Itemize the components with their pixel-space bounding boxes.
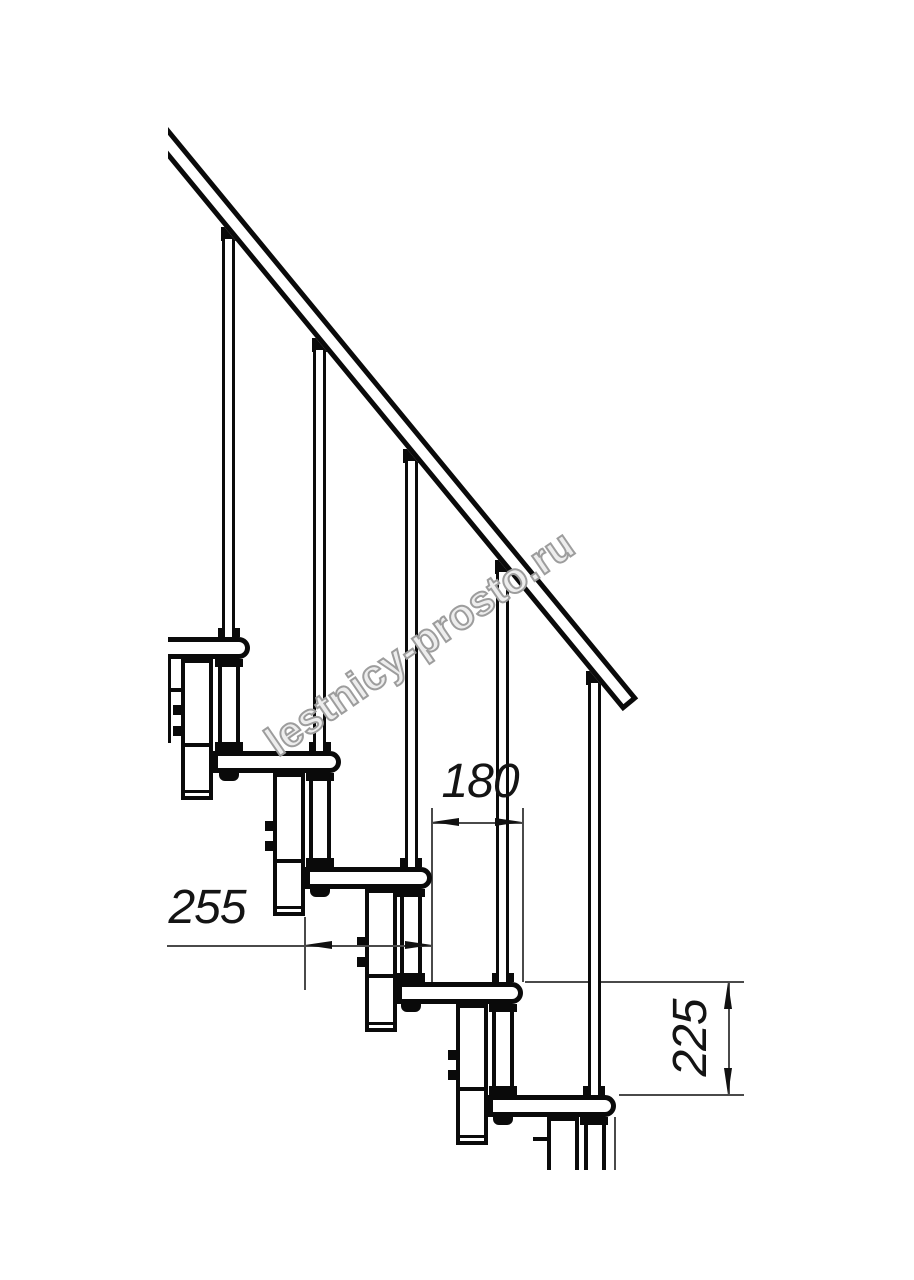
handrail-clip: [168, 0, 914, 1280]
arrow-225-down: [724, 1068, 732, 1095]
drawing-canvas: 180 255 225 lestnicy-prosto.ru: [0, 0, 914, 1280]
arrow-255-left: [305, 941, 332, 949]
dim-label-tread-depth: 255: [157, 882, 257, 934]
arrow-180-left: [432, 818, 459, 826]
arrow-225-up: [724, 982, 732, 1009]
dim-line-255: [167, 945, 432, 947]
arrow-180-right: [495, 818, 522, 826]
arrow-255-right: [405, 941, 432, 949]
dim-label-run: 180: [430, 756, 530, 808]
dim-label-rise: 225: [665, 988, 717, 1088]
